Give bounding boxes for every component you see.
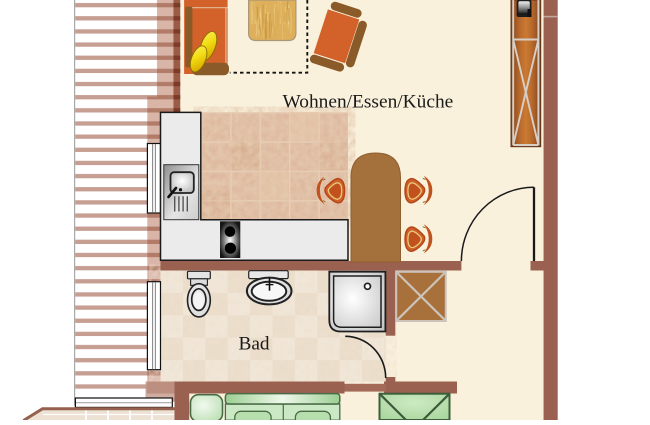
svg-text:Wohnen/Essen/Küche: Wohnen/Essen/Küche <box>283 92 454 113</box>
svg-text:Bad: Bad <box>239 334 270 355</box>
